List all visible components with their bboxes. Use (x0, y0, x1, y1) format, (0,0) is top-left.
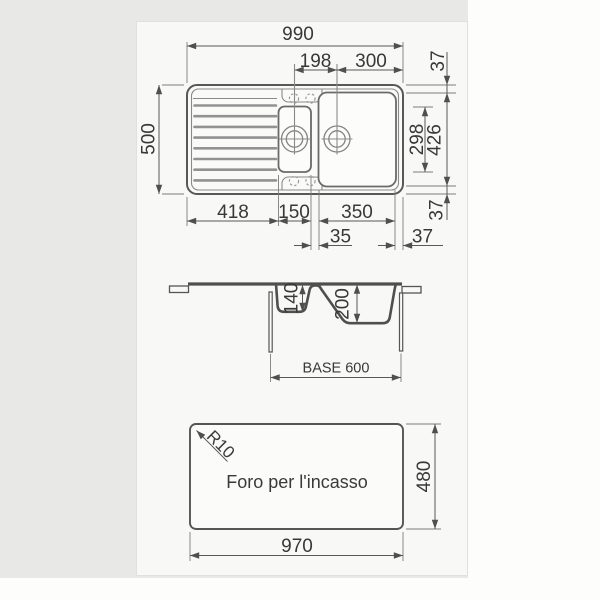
dim-top-rim: 37 (428, 50, 449, 71)
dim-bowl-center-spacing: 198 (300, 51, 332, 72)
mounting-clip-right (402, 287, 421, 294)
dim-cutout-height: 480 (414, 461, 435, 493)
dim-overall-width: 990 (282, 24, 314, 45)
dim-large-bowl-depth: 200 (333, 288, 354, 320)
dim-large-bowl-width: 350 (341, 202, 373, 223)
cutout-label: Foro per l'incasso (226, 472, 368, 492)
dim-base-cabinet: BASE 600 (303, 361, 370, 377)
mounting-clip-left (170, 286, 189, 293)
dim-cutout-width: 970 (281, 536, 313, 557)
dim-small-bowl-length: 298 (407, 124, 428, 156)
dim-small-bowl-width: 150 (278, 202, 310, 223)
dim-right-rim: 37 (412, 227, 433, 248)
technical-drawing-page: 990 198 300 500 37 426 37 298 (0, 0, 600, 600)
cabinet-wall-left (269, 292, 272, 352)
dim-drainboard-width: 418 (217, 202, 249, 223)
cabinet-wall-right (400, 293, 403, 351)
dim-small-bowl-depth: 140 (282, 283, 303, 315)
dim-bowl-center-to-edge: 300 (355, 51, 387, 72)
dim-overall-depth: 500 (139, 123, 160, 155)
dim-divider-width: 35 (330, 227, 351, 248)
sink-technical-drawing: 990 198 300 500 37 426 37 298 (0, 0, 600, 600)
dim-bottom-rim: 37 (427, 199, 448, 220)
